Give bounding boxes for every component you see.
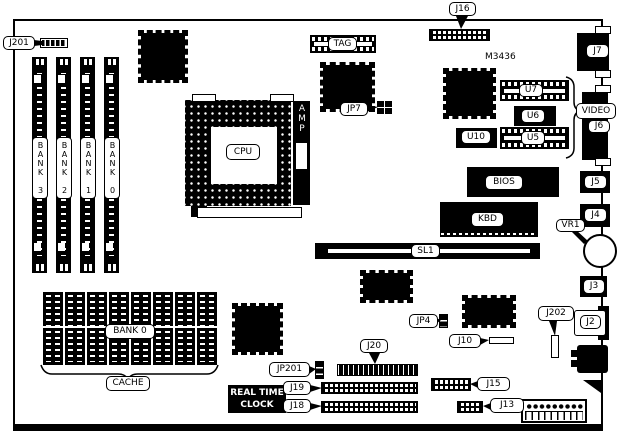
jp201-label: JP201 xyxy=(269,362,310,377)
din-tab xyxy=(571,360,578,367)
jp4-label: JP4 xyxy=(409,314,438,328)
j4-label: J4 xyxy=(584,208,607,222)
j19-label: J19 xyxy=(283,381,311,395)
j20-header xyxy=(337,364,418,376)
u5-label: U5 xyxy=(521,131,545,145)
bracket-tab xyxy=(595,26,611,34)
motherboard-layout-diagram: BANK 3 BANK 2 BANK 1 BANK 0 AMP xyxy=(0,0,619,434)
board-edge-left xyxy=(13,19,15,431)
j10-label: J10 xyxy=(449,334,481,348)
jp201-jumper xyxy=(315,361,324,379)
jp4-jumper xyxy=(439,314,448,328)
simm-slot-tab xyxy=(56,57,71,67)
bank2-label: BANK 2 xyxy=(56,137,72,199)
j202-connector xyxy=(551,335,559,358)
simm-slot-tab xyxy=(56,262,71,273)
bank3-label: BANK 3 xyxy=(32,137,48,199)
vr1-battery xyxy=(583,234,617,268)
j13-label: J13 xyxy=(490,398,524,413)
cpu-label: CPU xyxy=(226,144,260,160)
amp-label: AMP xyxy=(297,104,306,134)
j15-header xyxy=(431,378,471,391)
j3-label: J3 xyxy=(583,279,605,294)
amp-voltage-regulator: AMP xyxy=(293,101,310,205)
j202-label: J202 xyxy=(538,306,574,321)
j13-square-pins xyxy=(525,411,583,420)
cache-chip-column xyxy=(197,292,217,365)
j18-header xyxy=(321,401,418,413)
j13-small-header xyxy=(457,401,483,413)
j13-round-pins xyxy=(525,402,583,411)
din-tab xyxy=(571,350,578,357)
j16-pointer xyxy=(456,16,468,29)
cache-chip-column xyxy=(153,292,173,365)
bracket-tab xyxy=(595,70,611,78)
kbd-label: KBD xyxy=(471,212,504,227)
j7-label: J7 xyxy=(586,44,609,58)
j10-pointer xyxy=(480,338,489,345)
cache-label: CACHE xyxy=(106,376,150,391)
simm-slot-tab xyxy=(32,57,47,67)
qfp-chip xyxy=(360,270,413,303)
jp7-label: JP7 xyxy=(340,102,368,116)
qfp-chip xyxy=(443,68,496,119)
board-edge-top xyxy=(13,19,603,21)
qfp-chip xyxy=(232,303,283,355)
board-model-text: M3436 xyxy=(485,53,516,62)
video-label: VIDEO xyxy=(576,103,616,119)
cache-chip-column xyxy=(65,292,85,365)
amp-heatsink xyxy=(296,143,307,169)
vr1-label: VR1 xyxy=(556,219,585,232)
simm-slot-tab xyxy=(32,262,47,273)
j16-header xyxy=(429,29,490,41)
simm-slot-tab xyxy=(104,262,119,273)
tag-label: TAG xyxy=(328,37,357,51)
j202-pointer xyxy=(549,321,557,336)
j6-label: J6 xyxy=(588,120,610,133)
cache-bank0-label: BANK 0 xyxy=(105,324,155,339)
u7-label: U7 xyxy=(519,84,543,97)
j18-label: J18 xyxy=(283,399,311,413)
u10-label: U10 xyxy=(461,130,491,144)
socket-lever-bar xyxy=(197,207,302,218)
j19-header xyxy=(321,382,418,394)
board-corner-notch xyxy=(583,380,601,393)
j201-label: J201 xyxy=(3,36,35,50)
qfp-chip xyxy=(138,30,188,83)
simm-slot-tab xyxy=(80,57,95,67)
j20-label: J20 xyxy=(360,339,388,353)
u6-label: U6 xyxy=(521,109,545,123)
jp7-jumper xyxy=(377,101,392,114)
cache-chip-column xyxy=(175,292,195,365)
rtc-line2: CLOCK xyxy=(240,399,273,411)
j15-label: J15 xyxy=(477,377,510,391)
sl1-label: SL1 xyxy=(411,244,440,258)
cache-chip-column xyxy=(43,292,63,365)
bracket-tab xyxy=(595,158,611,166)
socket-bracket xyxy=(192,94,216,102)
bios-label: BIOS xyxy=(485,175,523,190)
simm-slot-tab xyxy=(80,262,95,273)
rtc-line1: REAL TIME xyxy=(230,387,284,399)
j16-label: J16 xyxy=(449,2,476,16)
j13-connector xyxy=(521,399,587,423)
keyboard-din-connector xyxy=(577,345,608,373)
bank1-label: BANK 1 xyxy=(80,137,96,199)
j2-label: J2 xyxy=(580,315,601,329)
bracket-tab xyxy=(595,85,611,93)
qfp-chip xyxy=(462,295,516,328)
j201-connector xyxy=(40,38,68,48)
j10-connector xyxy=(489,337,514,344)
j20-pointer xyxy=(369,353,380,364)
cache-chip-column xyxy=(87,292,107,365)
simm-slot-tab xyxy=(104,57,119,67)
bank0-label: BANK 0 xyxy=(104,137,120,199)
socket-bracket xyxy=(270,94,294,102)
board-edge-bottom xyxy=(13,424,603,431)
j5-label: J5 xyxy=(584,175,607,189)
real-time-clock: REAL TIME CLOCK xyxy=(228,385,286,413)
